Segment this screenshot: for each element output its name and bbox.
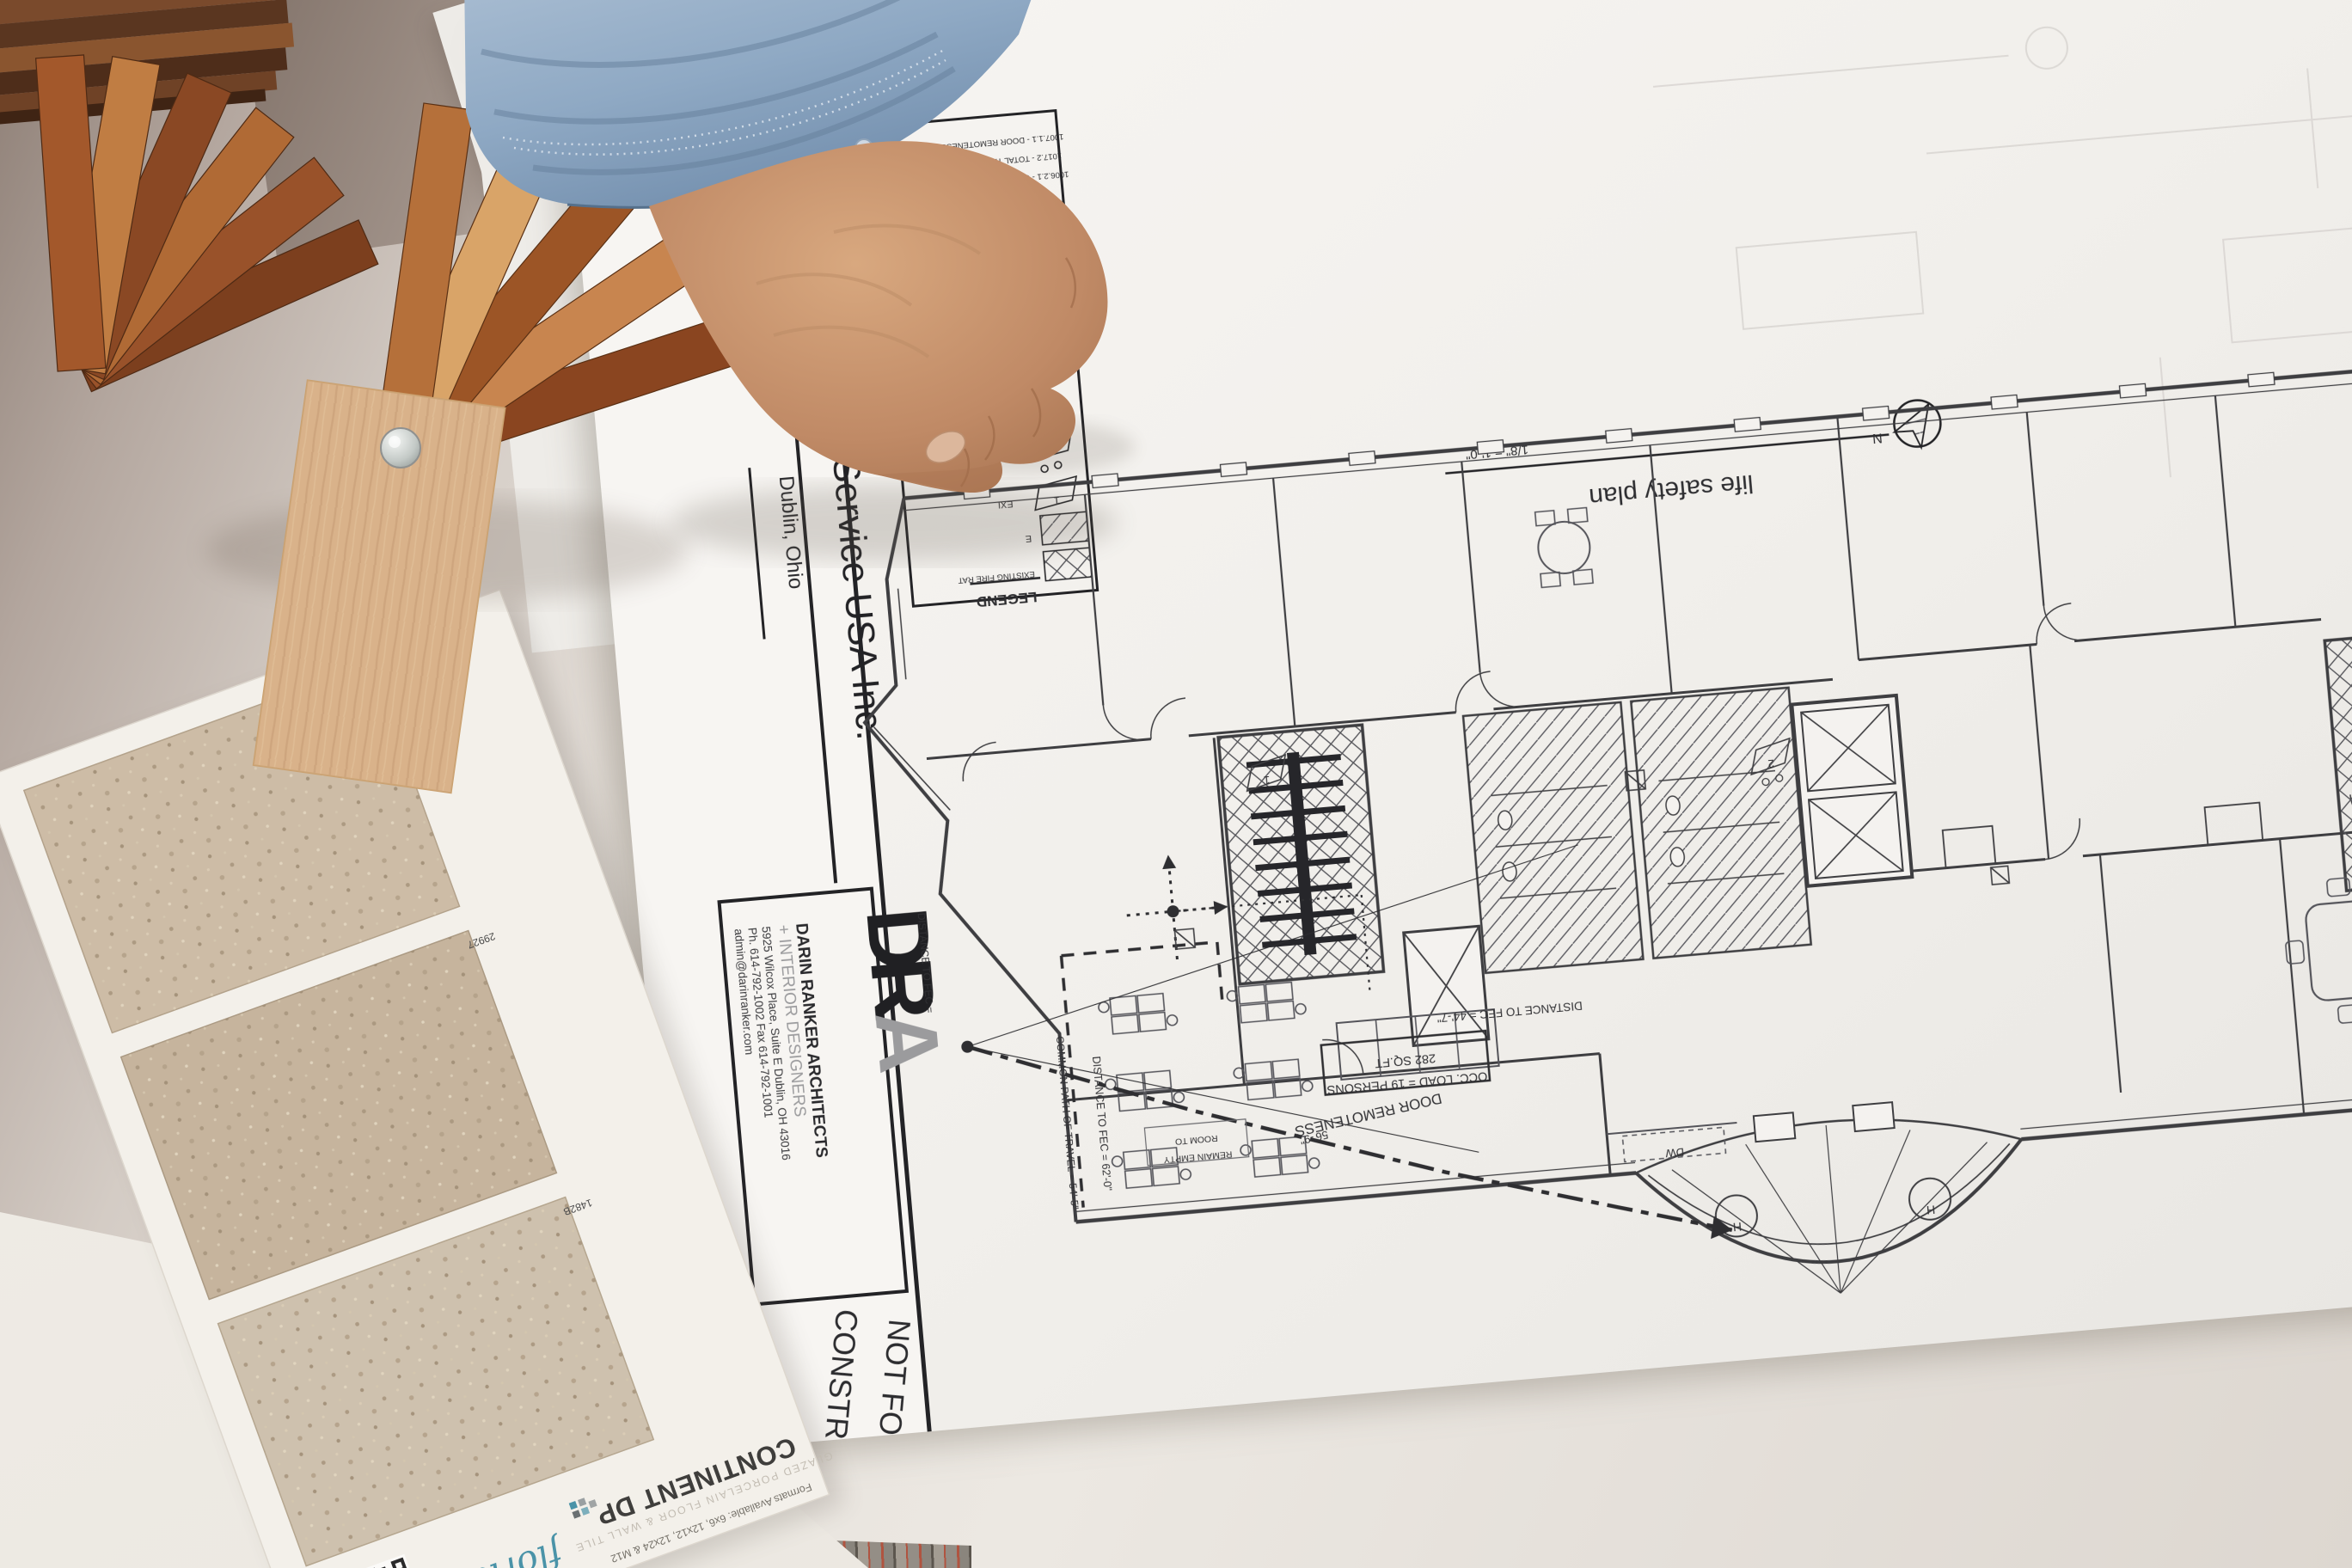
wood-fan-a: [36, 55, 378, 392]
photo-scene: curity Service USA Inc. Dublin, Ohio DR …: [0, 0, 2352, 1568]
hand: [649, 141, 1107, 493]
foreground-objects: 29927 1482B CONTINENT DP GLAZED PORCELAI…: [0, 0, 2352, 1568]
hand-shadow: [671, 485, 1118, 560]
bolt-highlight: [389, 436, 401, 448]
fastener-bolt: [381, 428, 420, 468]
